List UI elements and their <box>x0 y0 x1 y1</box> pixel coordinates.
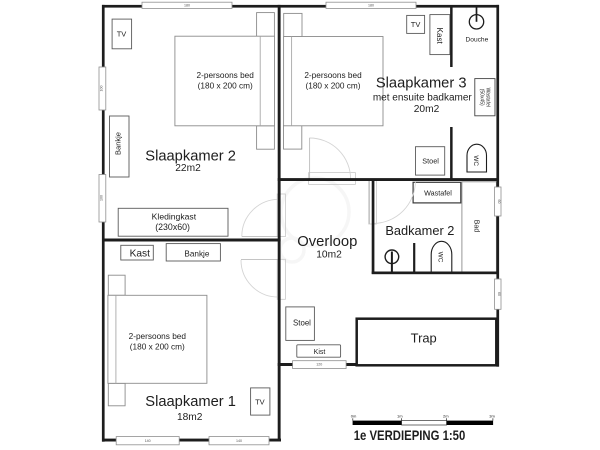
svg-text:Kast: Kast <box>130 249 151 260</box>
svg-text:(180 x 200 cm): (180 x 200 cm) <box>130 343 185 352</box>
svg-text:2m: 2m <box>443 414 449 419</box>
svg-text:1e VERDIEPING 1:50: 1e VERDIEPING 1:50 <box>354 427 466 443</box>
svg-text:WC: WC <box>472 155 479 166</box>
svg-text:140: 140 <box>145 439 151 443</box>
svg-text:Stoel: Stoel <box>422 157 439 166</box>
svg-text:100: 100 <box>99 86 103 92</box>
svg-text:Trap: Trap <box>411 330 437 345</box>
svg-text:180: 180 <box>368 4 374 8</box>
svg-text:TV: TV <box>411 20 421 29</box>
svg-text:Kast: Kast <box>435 28 444 45</box>
svg-text:(180 x 200 cm): (180 x 200 cm) <box>305 82 360 91</box>
svg-text:(180 x 200 cm): (180 x 200 cm) <box>198 82 253 91</box>
svg-text:1m: 1m <box>397 414 403 419</box>
svg-text:18m2: 18m2 <box>177 412 203 423</box>
svg-text:Bankje: Bankje <box>184 250 209 259</box>
svg-text:22m2: 22m2 <box>175 163 201 174</box>
svg-text:Stoel: Stoel <box>293 319 311 328</box>
svg-text:TV: TV <box>117 30 127 39</box>
svg-text:2-persoons bed: 2-persoons bed <box>304 71 362 80</box>
svg-text:WC: WC <box>437 252 444 263</box>
svg-text:2-persoons bed: 2-persoons bed <box>197 71 255 80</box>
svg-text:(230x60): (230x60) <box>155 222 190 232</box>
svg-text:Bankje: Bankje <box>114 132 123 155</box>
svg-text:20m2: 20m2 <box>414 104 440 115</box>
svg-text:Kist: Kist <box>314 349 326 356</box>
svg-text:3m: 3m <box>489 414 495 419</box>
svg-text:Bad: Bad <box>473 220 480 233</box>
svg-text:Wastafel: Wastafel <box>424 189 452 198</box>
svg-text:60: 60 <box>497 292 501 296</box>
svg-text:Badkamer 2: Badkamer 2 <box>385 223 454 238</box>
svg-text:(50x45): (50x45) <box>479 89 485 106</box>
svg-text:2-persoons bed: 2-persoons bed <box>129 332 187 341</box>
svg-text:Kledingkast: Kledingkast <box>152 211 197 221</box>
svg-text:120: 120 <box>316 363 322 367</box>
svg-text:Slaapkamer 3: Slaapkamer 3 <box>376 75 467 91</box>
svg-text:Slaapkamer 2: Slaapkamer 2 <box>145 149 236 165</box>
svg-text:Douche: Douche <box>466 36 489 43</box>
svg-text:Overloop: Overloop <box>297 234 357 250</box>
svg-text:180: 180 <box>184 4 190 8</box>
svg-text:100: 100 <box>99 195 103 201</box>
svg-text:TV: TV <box>255 397 265 406</box>
svg-text:Slaapkamer 1: Slaapkamer 1 <box>145 394 236 410</box>
svg-text:10m2: 10m2 <box>316 249 342 260</box>
svg-text:0m: 0m <box>351 414 357 419</box>
svg-text:met ensuite badkamer: met ensuite badkamer <box>373 92 473 103</box>
svg-text:60: 60 <box>497 200 501 204</box>
svg-text:140: 140 <box>236 439 242 443</box>
